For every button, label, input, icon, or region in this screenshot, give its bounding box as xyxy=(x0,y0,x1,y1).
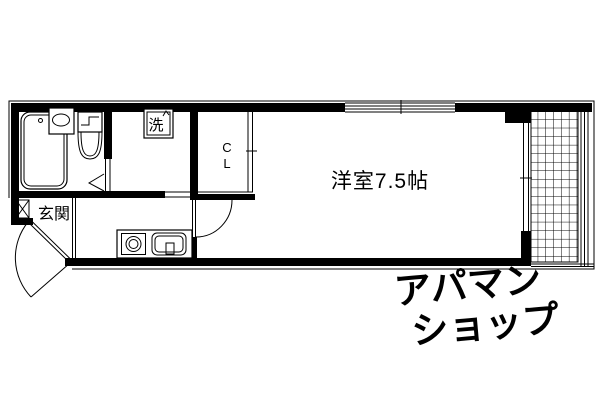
toilet-bowl-inner xyxy=(81,132,99,156)
balcony xyxy=(531,108,594,267)
closet-label-c: C xyxy=(222,140,231,155)
window-right xyxy=(520,123,532,231)
main-room-label: 洋室7.5帖 xyxy=(331,170,429,193)
wall-right-stub xyxy=(521,231,531,258)
balcony-grid xyxy=(531,108,578,262)
entrance-label: 玄関 xyxy=(38,205,70,223)
main-room: 洋室7.5帖 xyxy=(193,170,430,237)
window-top xyxy=(345,100,455,114)
entrance-door-swing-arc xyxy=(15,222,31,297)
wall-closet-left xyxy=(190,105,198,194)
room-door-swing-arc xyxy=(196,200,232,237)
wall-bath-bottom xyxy=(11,191,112,198)
wall-bath-divider xyxy=(104,105,112,159)
wall-left xyxy=(11,103,19,225)
kitchen xyxy=(73,198,193,258)
entrance-door-leaf xyxy=(28,222,70,263)
entrance-door-open-line xyxy=(31,263,70,297)
entrance: 玄関 xyxy=(15,200,72,297)
wall-right-step xyxy=(505,108,531,123)
watermark: アパマン ショップ xyxy=(393,257,561,353)
entrance-door-leaf xyxy=(30,220,72,261)
laundry-label: 洗 xyxy=(148,117,163,134)
wall-closet-bottom xyxy=(190,194,255,200)
wall-laundry-bottom xyxy=(112,191,165,198)
floor-plan-svg: 洗 C L 玄関 洋室7.5帖 xyxy=(0,0,600,400)
closet: C L xyxy=(198,112,257,192)
laundry-room: 洗 xyxy=(144,109,190,197)
closet-label-l: L xyxy=(223,156,230,171)
floor-plan-canvas: 洗 C L 玄関 洋室7.5帖 xyxy=(0,0,600,400)
bathroom xyxy=(21,108,110,197)
toilet-tank xyxy=(78,112,102,132)
bathroom-door-swing-icon xyxy=(89,174,104,191)
